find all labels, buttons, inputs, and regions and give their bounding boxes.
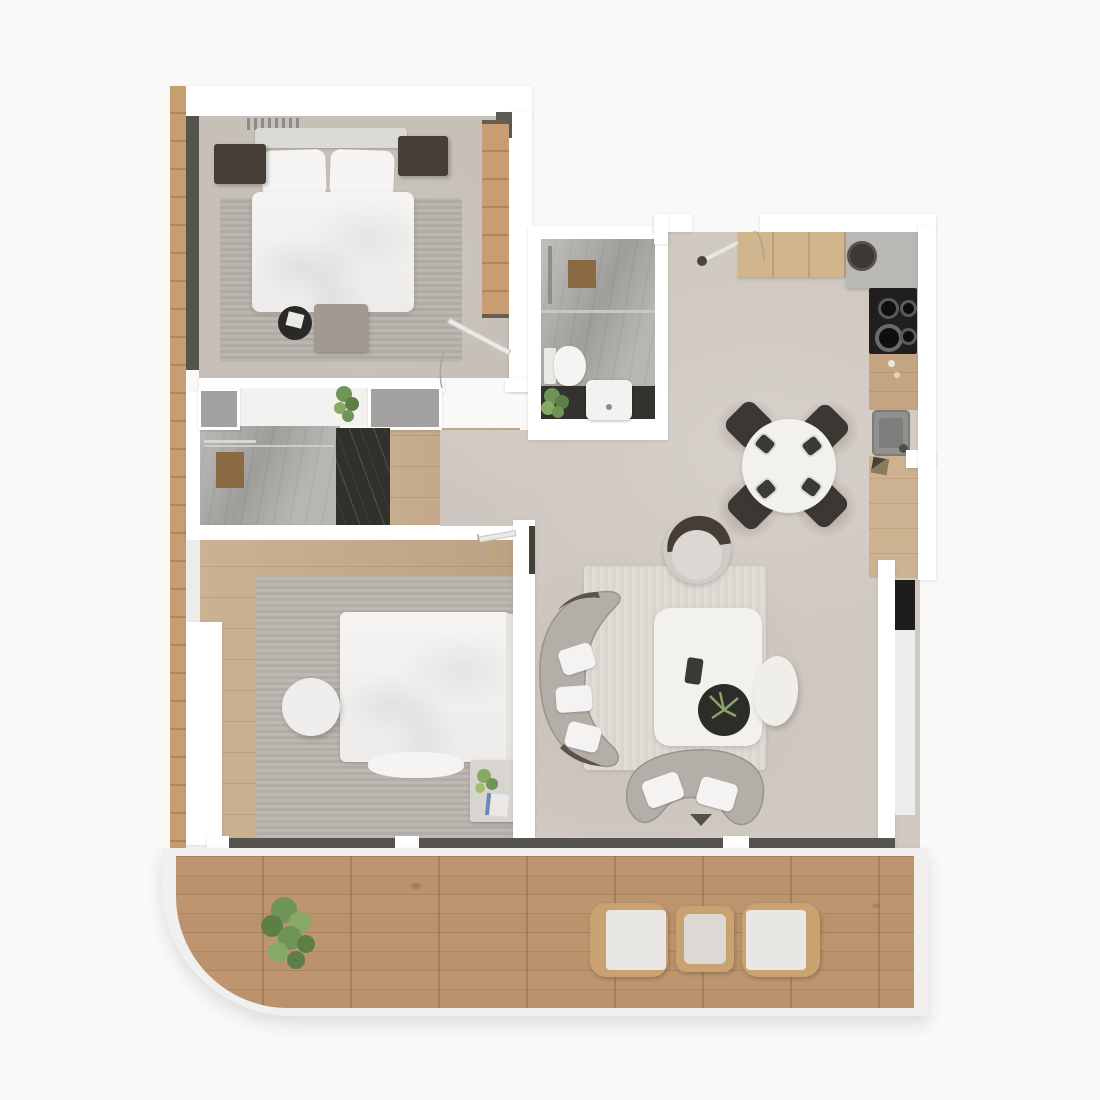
hallway-closet-left <box>198 388 240 430</box>
bedroom2-window-left <box>186 540 200 622</box>
coffee-table-tray <box>698 684 750 736</box>
cooktop-burner-4 <box>900 328 917 345</box>
bedroom2-bench-book <box>485 793 509 817</box>
sofa-left-cushion-2 <box>555 685 593 713</box>
bedroom2-west-wall <box>186 622 222 845</box>
bathroom2-towel-rail <box>204 440 256 443</box>
terrace-chair-left-cushion <box>606 910 666 970</box>
bathroom1-shower-mat <box>568 260 596 288</box>
kitchen-upper-counter-wood <box>738 232 846 277</box>
kitchen-top-wall-right <box>760 214 936 232</box>
dining-table <box>742 419 836 513</box>
kitchen-right-wall <box>918 226 936 580</box>
hallway-upper-wall <box>232 388 368 426</box>
bedroom1-nightstand-right <box>398 136 448 176</box>
left-exterior-wood-strip <box>170 86 186 858</box>
kitchen-sink-basin <box>879 418 903 448</box>
terrace-chair-right-cushion <box>746 910 806 970</box>
bedroom1-nightstand-left <box>214 144 266 184</box>
bedroom1-wardrobe <box>482 120 509 318</box>
bedroom2-duvet-spill <box>368 752 464 778</box>
bathroom1-shower-bar <box>548 246 552 304</box>
cooktop-burner-2 <box>900 300 917 317</box>
bedroom1-headboard <box>255 128 407 148</box>
bedroom1-top-wall <box>172 86 532 116</box>
bedroom1-foot-bench <box>314 304 368 352</box>
kitchen-cutting-board <box>871 457 890 476</box>
living-window-frame-black <box>895 580 915 630</box>
bedroom2-door-post <box>529 526 535 574</box>
bathroom1-sink <box>586 380 632 420</box>
cooktop-burner-1 <box>878 298 899 319</box>
entry-door-hinge <box>697 256 707 266</box>
bathroom1-shower-glass <box>541 310 655 313</box>
bedroom2-bed <box>340 612 510 762</box>
cooktop-burner-3 <box>875 324 903 352</box>
kitchen-bottle-2 <box>894 372 900 378</box>
bedroom1-window-left <box>186 116 199 370</box>
hallway-opening-floor <box>440 430 540 526</box>
floor-plan-canvas <box>0 0 1100 1100</box>
terrace-side-table-top <box>684 914 726 964</box>
bedroom1-bed <box>252 192 414 312</box>
lounge-chair-seat <box>672 530 722 580</box>
bathroom2-shower-mat <box>216 452 244 488</box>
bedroom2-pouf <box>282 678 340 736</box>
hallway-closet-right <box>368 386 442 430</box>
living-east-wall <box>878 560 895 852</box>
hallway-south-wall <box>186 525 516 540</box>
entry-west-wall <box>654 214 668 244</box>
kitchen-bottle-1 <box>888 360 895 367</box>
living-window-glass <box>895 630 915 815</box>
bathroom1-toilet-bowl <box>554 346 586 386</box>
bathroom1-sink-drain <box>606 404 612 410</box>
kitchen-round-sink <box>847 241 877 271</box>
bathroom2-dark-marble-wall <box>336 428 390 525</box>
